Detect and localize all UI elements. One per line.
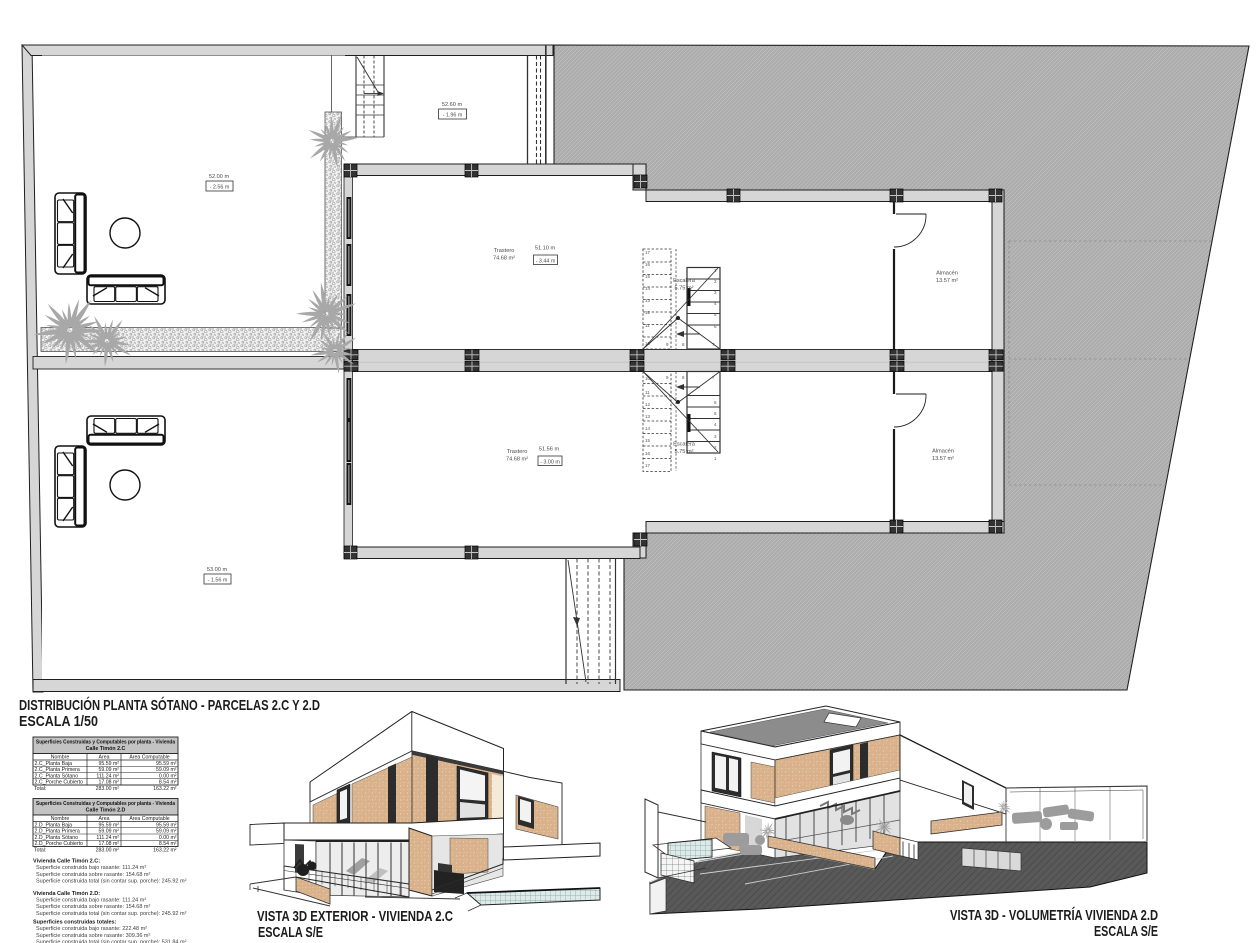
svg-text:0.00 m²: 0.00 m² — [159, 774, 177, 780]
svg-text:2.D_Planta Sótano: 2.D_Planta Sótano — [35, 835, 79, 841]
svg-text:Area: Area — [99, 755, 110, 761]
svg-text:Superficie construida bajo ras: Superficie construida bajo rasante: 222.… — [36, 926, 147, 932]
svg-text:51.10 m: 51.10 m — [535, 246, 556, 252]
svg-text:8.54 m²: 8.54 m² — [159, 780, 177, 786]
svg-text:2.C_Planta Baja: 2.C_Planta Baja — [35, 761, 73, 767]
svg-text:12: 12 — [645, 402, 651, 407]
svg-text:283.00 m²: 283.00 m² — [96, 848, 120, 854]
svg-text:13: 13 — [645, 298, 651, 303]
svg-text:Superficie construida bajo ras: Superficie construida bajo rasante: 111.… — [36, 865, 146, 871]
svg-text:Superficies Construidas y Comp: Superficies Construidas y Computables po… — [36, 801, 175, 807]
svg-text:10: 10 — [645, 341, 651, 346]
svg-text:163.22 m²: 163.22 m² — [153, 848, 177, 854]
svg-text:15: 15 — [645, 274, 651, 279]
svg-text:16: 16 — [645, 451, 651, 456]
svg-text:2.C_Planta Primera: 2.C_Planta Primera — [35, 767, 80, 773]
svg-text:VISTA 3D EXTERIOR - VIVIENDA 2: VISTA 3D EXTERIOR - VIVIENDA 2.C — [257, 908, 453, 925]
svg-text:Calle Timón 2.D: Calle Timón 2.D — [86, 808, 126, 814]
svg-text:- 3.00 m: - 3.00 m — [540, 460, 560, 466]
svg-text:Almacén: Almacén — [932, 449, 954, 455]
svg-text:Vivienda Calle Timón 2.C:: Vivienda Calle Timón 2.C: — [33, 859, 100, 865]
svg-text:Area: Area — [99, 816, 110, 822]
svg-text:111.24 m²: 111.24 m² — [96, 835, 119, 841]
svg-text:163.22 m²: 163.22 m² — [153, 786, 177, 792]
svg-text:Superficie construida sobre ra: Superficie construida sobre rasante: 154… — [36, 904, 151, 910]
svg-text:2.D_Planta Primera: 2.D_Planta Primera — [35, 829, 80, 835]
svg-text:53.00 m: 53.00 m — [207, 567, 228, 573]
svg-text:59.09 m²: 59.09 m² — [99, 829, 120, 835]
svg-text:5.75 m²: 5.75 m² — [675, 449, 694, 455]
svg-text:2.C_Porche Cubierto: 2.C_Porche Cubierto — [35, 780, 84, 786]
svg-text:- 1.96 m: - 1.96 m — [443, 113, 463, 119]
svg-text:Superficie construida total (s: Superficie construida total (sin contar … — [36, 911, 187, 917]
svg-text:59.09 m²: 59.09 m² — [156, 767, 177, 773]
svg-text:Superficies construidas totale: Superficies construidas totales: — [33, 920, 117, 926]
svg-text:ESCALA 1/50: ESCALA 1/50 — [19, 713, 98, 730]
svg-text:95.59 m²: 95.59 m² — [99, 823, 120, 829]
svg-text:5.75 m²: 5.75 m² — [675, 286, 694, 292]
svg-text:13.57 m²: 13.57 m² — [936, 278, 958, 284]
svg-text:2.C_Planta Sótano: 2.C_Planta Sótano — [35, 774, 79, 780]
svg-text:17: 17 — [645, 250, 651, 255]
svg-text:10: 10 — [645, 376, 651, 381]
svg-text:ESCALA S/E: ESCALA S/E — [258, 924, 323, 941]
svg-text:12: 12 — [645, 310, 651, 315]
svg-text:14: 14 — [645, 426, 651, 431]
svg-text:- 2.56 m: - 2.56 m — [210, 185, 230, 191]
svg-text:16: 16 — [645, 262, 651, 267]
svg-text:52.60 m: 52.60 m — [442, 102, 463, 108]
svg-text:14: 14 — [645, 286, 651, 291]
svg-text:Trastero: Trastero — [507, 449, 528, 455]
svg-text:95.59 m²: 95.59 m² — [99, 761, 120, 767]
svg-text:51.56 m: 51.56 m — [539, 447, 560, 453]
svg-text:DISTRIBUCIÓN PLANTA SÓTANO - P: DISTRIBUCIÓN PLANTA SÓTANO - PARCELAS 2.… — [19, 696, 320, 714]
svg-text:11: 11 — [645, 323, 650, 328]
svg-text:Superficie construida sobre ra: Superficie construida sobre rasante: 154… — [36, 872, 151, 878]
svg-text:Vivienda Calle Timón 2.D:: Vivienda Calle Timón 2.D: — [33, 891, 100, 897]
svg-text:283.00 m²: 283.00 m² — [96, 786, 120, 792]
svg-text:17: 17 — [645, 463, 651, 468]
svg-text:111.24 m²: 111.24 m² — [96, 774, 119, 780]
svg-text:17.08 m²: 17.08 m² — [99, 841, 120, 847]
svg-text:11: 11 — [645, 390, 650, 395]
svg-text:8.54 m²: 8.54 m² — [159, 841, 177, 847]
svg-text:13: 13 — [645, 414, 651, 419]
svg-text:95.59 m²: 95.59 m² — [156, 761, 177, 767]
svg-text:Calle Timón 2.C: Calle Timón 2.C — [86, 746, 126, 752]
svg-text:Escalera: Escalera — [673, 278, 696, 284]
svg-text:- 3.44 m: - 3.44 m — [536, 259, 556, 265]
svg-text:2.D_Planta Baja: 2.D_Planta Baja — [35, 823, 73, 829]
svg-text:74.68 m²: 74.68 m² — [506, 457, 528, 463]
svg-text:Superficies Construidas y Comp: Superficies Construidas y Computables po… — [36, 740, 175, 746]
svg-text:Total:: Total: — [34, 848, 46, 854]
svg-text:15: 15 — [645, 438, 651, 443]
svg-text:Trastero: Trastero — [494, 248, 515, 254]
svg-text:Superficie construida total (s: Superficie construida total (sin contar … — [36, 940, 187, 943]
svg-text:VISTA 3D - VOLUMETRÍA VIVIENDA: VISTA 3D - VOLUMETRÍA VIVIENDA 2.D — [950, 907, 1158, 924]
svg-text:95.59 m²: 95.59 m² — [156, 823, 177, 829]
svg-text:Area Computable: Area Computable — [129, 755, 169, 761]
svg-text:74.68 m²: 74.68 m² — [493, 256, 515, 262]
svg-text:2.D_Porche Cubierto: 2.D_Porche Cubierto — [35, 841, 84, 847]
svg-text:Area Computable: Area Computable — [129, 816, 169, 822]
svg-text:13.57 m²: 13.57 m² — [932, 456, 954, 462]
svg-text:Superficie construida bajo ras: Superficie construida bajo rasante: 111.… — [36, 897, 146, 903]
svg-text:Almacén: Almacén — [936, 271, 958, 277]
svg-text:Superficie construida sobre ra: Superficie construida sobre rasante: 309… — [36, 933, 151, 939]
svg-text:59.09 m²: 59.09 m² — [156, 829, 177, 835]
svg-text:Superficie construida total (s: Superficie construida total (sin contar … — [36, 879, 187, 885]
svg-text:Nombre: Nombre — [51, 816, 70, 822]
svg-text:Total:: Total: — [34, 786, 46, 792]
svg-text:0.00 m²: 0.00 m² — [159, 835, 177, 841]
svg-text:- 1.56 m: - 1.56 m — [208, 578, 228, 584]
svg-text:Nombre: Nombre — [51, 755, 70, 761]
svg-text:17.08 m²: 17.08 m² — [99, 780, 120, 786]
svg-text:ESCALA S/E: ESCALA S/E — [1094, 923, 1158, 940]
svg-text:59.09 m²: 59.09 m² — [99, 767, 120, 773]
svg-text:52.00 m: 52.00 m — [209, 174, 230, 180]
svg-text:Escalera: Escalera — [673, 442, 696, 448]
